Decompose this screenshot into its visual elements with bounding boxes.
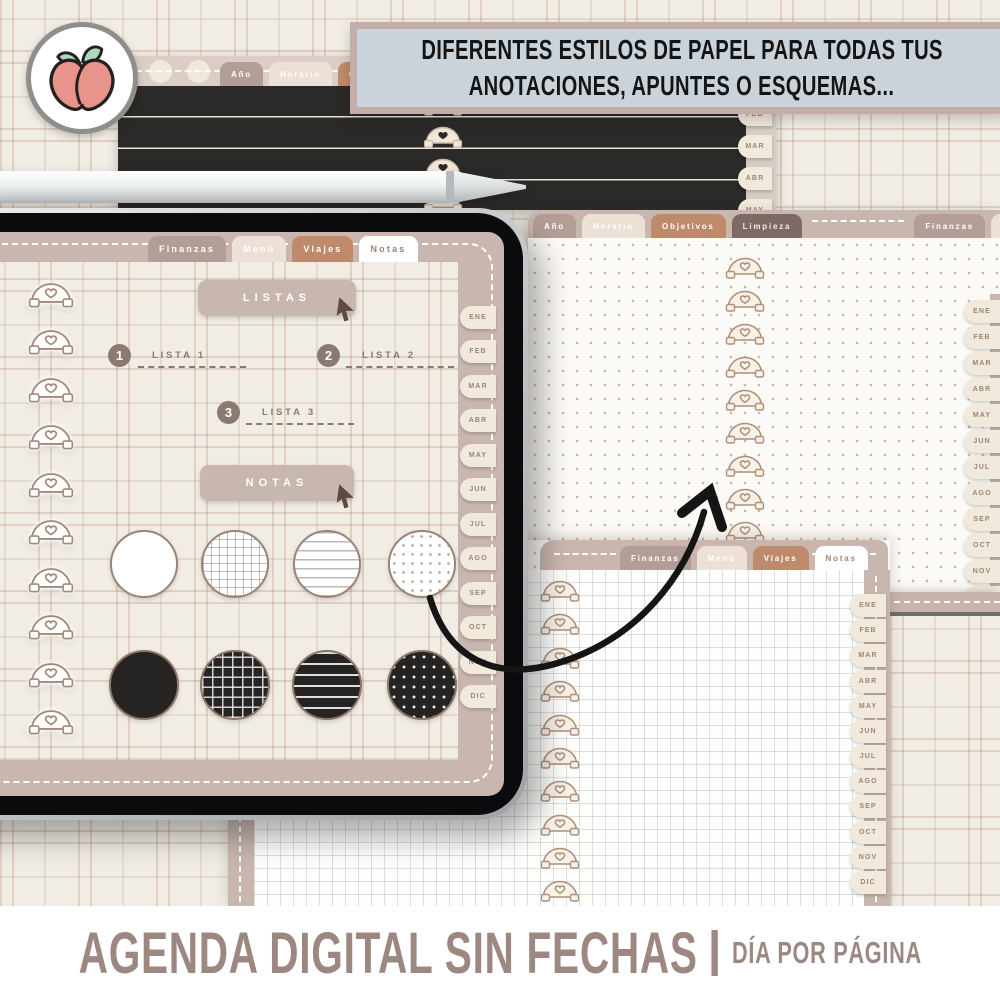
tab-viajes[interactable]: Viajes: [292, 236, 353, 262]
heart-clip-icon: [538, 611, 582, 637]
month-tab-nov[interactable]: NOV: [964, 560, 1000, 583]
heart-clip-icon: [24, 327, 78, 357]
month-tab-may[interactable]: MAY: [738, 199, 772, 210]
month-tab-may[interactable]: MAY: [964, 404, 1000, 427]
paper-style-black-blank[interactable]: [109, 650, 179, 720]
list-label: LISTA 3: [262, 407, 316, 418]
heart-clip-icon: [723, 387, 767, 413]
heart-clip-icon: [538, 745, 582, 771]
month-tab-mar[interactable]: MAR: [738, 135, 772, 158]
heart-clip-icon: [24, 375, 78, 405]
month-tab-oct[interactable]: OCT: [964, 534, 1000, 557]
paper-style-black-grid[interactable]: [200, 650, 270, 720]
month-tab-abr[interactable]: ABR: [964, 378, 1000, 401]
product-title: AGENDA DIGITAL SIN FECHAS: [78, 920, 697, 987]
heart-clip-icon: [24, 422, 78, 452]
heart-clip-icon: [418, 124, 468, 150]
tab-ano[interactable]: Año: [220, 62, 263, 86]
month-tab-mar[interactable]: MAR: [460, 375, 496, 398]
month-tab-jul[interactable]: JUL: [460, 513, 496, 536]
banner-text-line2: ANOTACIONES, APUNTES O ESQUEMAS...: [469, 68, 895, 104]
title-separator: [711, 930, 717, 976]
peach-icon: [38, 34, 126, 122]
month-tab-feb[interactable]: FEB: [964, 326, 1000, 349]
heart-clip-icon: [723, 321, 767, 347]
month-tab-jul[interactable]: JUL: [850, 745, 886, 768]
month-tab-jun[interactable]: JUN: [964, 430, 1000, 453]
heart-clip-icon: [723, 420, 767, 446]
heart-clip-icon: [24, 280, 78, 310]
month-tab-jun[interactable]: JUN: [460, 478, 496, 501]
month-tab-may[interactable]: MAY: [460, 444, 496, 467]
tab-limpieza[interactable]: Limpieza: [732, 214, 803, 238]
list-label: LISTA 1: [152, 350, 206, 361]
month-tab-ago[interactable]: AGO: [964, 482, 1000, 505]
month-tab-dic[interactable]: DIC: [460, 685, 496, 708]
list-number-badge: 1: [108, 344, 131, 367]
banner-text-line1: DIFERENTES ESTILOS DE PAPEL PARA TODAS T…: [421, 32, 942, 68]
paper-style-white-lined[interactable]: [293, 530, 361, 598]
heart-clip-icon: [24, 660, 78, 690]
month-tab-nov[interactable]: NOV: [460, 651, 496, 674]
month-tab-ago[interactable]: AGO: [460, 547, 496, 570]
heart-clip-icon: [723, 486, 767, 512]
month-tab-jul[interactable]: JUL: [964, 456, 1000, 479]
cursor-pointer-icon: [330, 481, 360, 511]
heart-clip-icon: [24, 707, 78, 737]
tab-finanzas[interactable]: Finanzas: [620, 546, 691, 570]
month-tab-nov[interactable]: NOV: [850, 846, 886, 869]
heart-clip-icon: [538, 712, 582, 738]
month-tab-may[interactable]: MAY: [850, 695, 886, 718]
tab-finanzas[interactable]: Finanzas: [914, 214, 985, 238]
heart-clip-icon: [538, 812, 582, 838]
tab-finanzas[interactable]: Finanzas: [148, 236, 226, 262]
tablet-screen: Finanzas Menú Viajes Notas LISTAS: [0, 232, 504, 796]
month-tab-dic[interactable]: DIC: [850, 871, 886, 894]
heart-clip-icon: [538, 678, 582, 704]
footer-band: AGENDA DIGITAL SIN FECHAS DÍA POR PÁGINA: [0, 906, 1000, 1000]
month-tab-abr[interactable]: ABR: [850, 670, 886, 693]
heart-clip-icon: [24, 565, 78, 595]
heart-clip-icon: [538, 778, 582, 804]
tablet-device: Finanzas Menú Viajes Notas LISTAS: [0, 208, 528, 820]
month-tab-mar[interactable]: MAR: [964, 352, 1000, 375]
paper-style-black-dotted[interactable]: [387, 650, 457, 720]
month-tab-feb[interactable]: FEB: [850, 619, 886, 642]
month-tab-oct[interactable]: OCT: [460, 616, 496, 639]
month-tab-sep[interactable]: SEP: [460, 582, 496, 605]
heart-clip-icon: [538, 845, 582, 871]
list-label: LISTA 2: [362, 350, 416, 361]
dashed-writing-line: [246, 423, 354, 425]
month-tab-sep[interactable]: SEP: [850, 795, 886, 818]
paper-style-white-blank[interactable]: [110, 530, 178, 598]
tab-menu[interactable]: Menú: [991, 214, 1000, 238]
stylus-pencil: [0, 171, 526, 203]
month-tab-ene[interactable]: ENE: [850, 594, 886, 617]
paper-style-white-dotted[interactable]: [388, 530, 456, 598]
heart-clip-icon: [723, 453, 767, 479]
right-page-header: Año Horario Objetivos Limpieza Finanzas …: [528, 210, 1000, 238]
month-tab-ago[interactable]: AGO: [850, 770, 886, 793]
tablet-bezel: Finanzas Menú Viajes Notas LISTAS: [0, 213, 523, 815]
heart-clip-icon: [538, 578, 582, 604]
paper-style-white-grid[interactable]: [201, 530, 269, 598]
list-number-badge: 2: [317, 344, 340, 367]
month-tab-jun[interactable]: JUN: [850, 720, 886, 743]
tab-horario[interactable]: Horario: [582, 214, 645, 238]
list-number-badge: 3: [217, 401, 240, 424]
tab-notas-active[interactable]: Notas: [359, 236, 417, 262]
heart-clip-icon: [538, 878, 582, 904]
heart-clip-icon: [24, 612, 78, 642]
month-tab-mar[interactable]: MAR: [850, 644, 886, 667]
month-tab-feb[interactable]: FEB: [460, 340, 496, 363]
month-tab-ene[interactable]: ENE: [460, 306, 496, 329]
month-tab-sep[interactable]: SEP: [964, 508, 1000, 531]
cursor-pointer-icon: [330, 294, 360, 324]
heart-clip-icon: [723, 288, 767, 314]
heart-clip-icon: [723, 255, 767, 281]
bottom-page-header: Finanzas Menú Viajes Notas: [540, 540, 888, 570]
dashed-line: [812, 220, 904, 222]
promo-graphic: Año Horario Objetivos FEB MAR ABR MAY Añ…: [0, 0, 1000, 1000]
month-tab-abr[interactable]: ABR: [460, 409, 496, 432]
month-tab-ene[interactable]: ENE: [964, 300, 1000, 323]
card-border-band: [890, 592, 1000, 612]
peach-logo: [26, 22, 138, 134]
tab-viajes[interactable]: Viajes: [753, 546, 809, 570]
tab-horario[interactable]: Horario: [269, 62, 332, 86]
heart-clip-icon: [24, 470, 78, 500]
month-tab-oct[interactable]: OCT: [850, 821, 886, 844]
paper-style-black-lined[interactable]: [292, 650, 362, 720]
top-banner: DIFERENTES ESTILOS DE PAPEL PARA TODAS T…: [350, 22, 1000, 114]
month-tab-abr[interactable]: ABR: [738, 167, 772, 190]
tab-menu[interactable]: Menú: [232, 236, 286, 262]
tab-objetivos[interactable]: Objetivos: [651, 214, 726, 238]
dashed-writing-line: [138, 366, 246, 368]
tab-menu[interactable]: Menú: [697, 546, 747, 570]
dashed-writing-line: [346, 366, 454, 368]
heart-clip-icon: [24, 517, 78, 547]
tab-notas-active[interactable]: Notas: [815, 546, 868, 570]
plaid-cover-card: [890, 592, 1000, 908]
heart-clip-icon: [723, 354, 767, 380]
heart-clip-icon: [538, 645, 582, 671]
tab-ano[interactable]: Año: [533, 214, 576, 238]
product-subtitle: DÍA POR PÁGINA: [732, 935, 922, 971]
